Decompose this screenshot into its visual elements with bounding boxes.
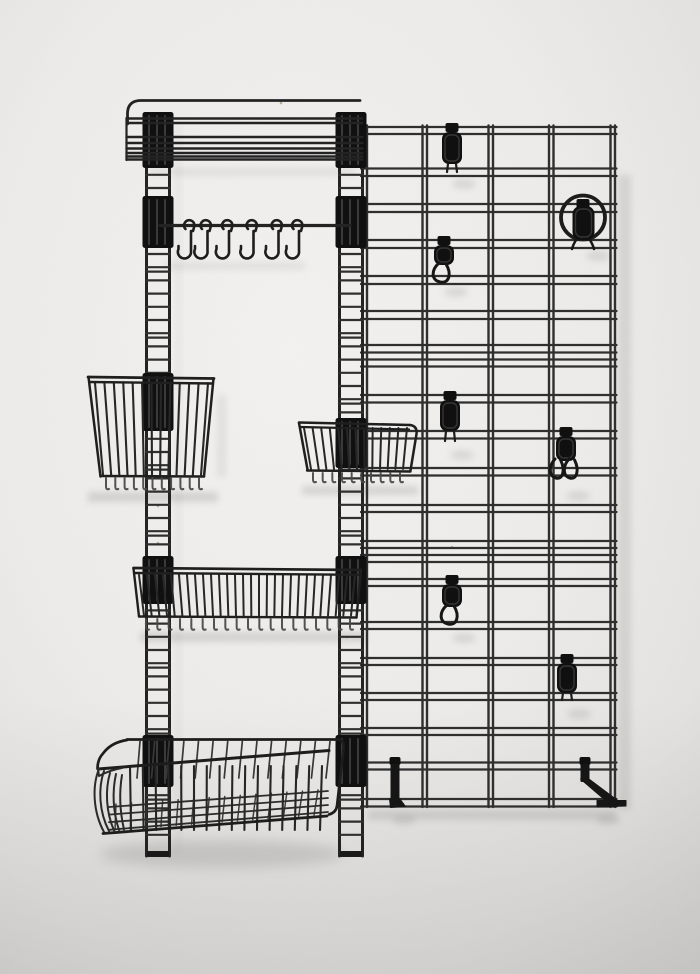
- photo-canvas: [0, 0, 700, 974]
- wall-organizer-photo: [0, 0, 700, 974]
